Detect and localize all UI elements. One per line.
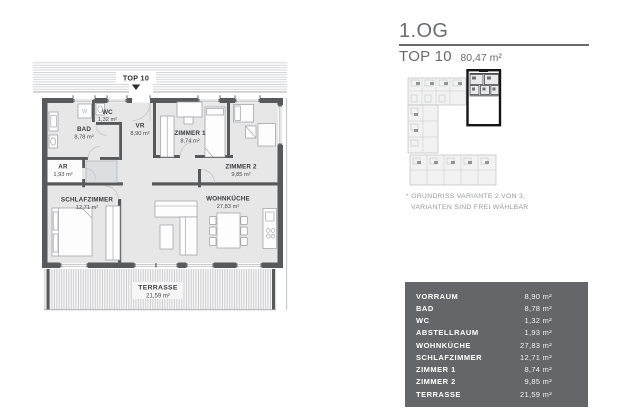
unit-title: TOP 10 80,47 m² (399, 48, 502, 66)
variant-note-line1: * GRUNDRISS VARIANTE 2 VON 3, (406, 192, 529, 203)
window-bottom-2 (186, 263, 214, 267)
kitchen-counter (263, 209, 277, 249)
window-right (278, 105, 282, 145)
wohnkueche-area: 27,83 m² (217, 204, 240, 210)
entrance-door-gap (132, 99, 150, 103)
table-row: WC 1,32 m² (405, 315, 588, 327)
window-top-4 (235, 99, 260, 103)
entrance-marker-label: TOP 10 (123, 74, 149, 83)
row-value: 1,93 m² (524, 328, 552, 337)
table-row: BAD 8,78 m² (405, 302, 588, 314)
bedroom-furniture (52, 206, 120, 260)
wohnkueche-label: WOHNKÜCHE (206, 194, 250, 203)
terrasse-label: TERRASSE (138, 285, 178, 292)
wc-label: WC (102, 109, 113, 116)
terrace-door (134, 263, 178, 267)
floor-title: 1.OG (399, 21, 448, 41)
dining-set (210, 213, 248, 248)
row-value: 1,32 m² (524, 316, 552, 325)
zimmer2-label: ZIMMER 2 (225, 164, 257, 171)
zimmer1-label: ZIMMER 1 (174, 130, 206, 137)
row-value: 8,78 m² (524, 304, 552, 313)
schlafzimmer-label: SCHLAFZIMMER (61, 197, 113, 204)
row-value: 8,90 m² (524, 292, 552, 301)
ar-label: AR (58, 164, 68, 171)
row-value: 9,85 m² (524, 377, 552, 386)
washer-label: W (82, 109, 88, 115)
zimmer1-area: 8,74 m² (180, 139, 199, 145)
row-label: ZIMMER 1 (416, 365, 456, 374)
row-label: ZIMMER 2 (416, 377, 456, 386)
schlafzimmer-area: 12,71 m² (76, 205, 99, 211)
row-label: BAD (416, 304, 434, 313)
vr-area: 8,90 m² (130, 131, 149, 137)
table-row: VORRAUM 8,90 m² (405, 290, 588, 302)
bad-area: 8,78 m² (74, 135, 93, 141)
zimmer2-area: 9,85 m² (231, 172, 250, 178)
floor-plan: TOP 10 (30, 60, 300, 320)
table-row: ZIMMER 1 8,74 m² (405, 364, 588, 376)
window-bottom-1 (60, 263, 88, 267)
row-value: 21,59 m² (520, 390, 552, 399)
window-top-1 (73, 99, 95, 103)
table-row: ABSTELLRAUM 1,93 m² (405, 327, 588, 339)
row-label: WC (416, 316, 430, 325)
row-label: TERRASSE (416, 390, 461, 399)
window-bottom-3 (236, 263, 262, 267)
area-table: VORRAUM 8,90 m² BAD 8,78 m² WC 1,32 m² A… (405, 282, 588, 407)
row-value: 8,74 m² (524, 365, 552, 374)
window-top-2 (107, 99, 127, 103)
row-label: SCHLAFZIMMER (416, 353, 482, 362)
row-value: 27,83 m² (520, 341, 552, 350)
bad-label: BAD (77, 126, 91, 133)
variant-note-line2: VARIANTEN SIND FREI WÄHLBAR (406, 203, 529, 214)
row-value: 12,71 m² (520, 353, 552, 362)
vr-label: VR (135, 123, 144, 130)
site-key-plan (402, 69, 506, 189)
table-row: SCHLAFZIMMER 12,71 m² (405, 351, 588, 363)
row-label: WOHNKÜCHE (416, 341, 471, 350)
key-plan-highlighted-unit (468, 69, 501, 125)
table-row: WOHNKÜCHE 27,83 m² (405, 339, 588, 351)
table-row: TERRASSE 21,59 m² (405, 388, 588, 400)
facade-line (286, 98, 287, 310)
table-row: ZIMMER 2 9,85 m² (405, 376, 588, 388)
ar-area: 1,93 m² (53, 172, 72, 178)
unit-total-area: 80,47 m² (460, 52, 501, 64)
terrasse-area: 21,59 m² (146, 294, 170, 300)
brochure-page: TOP 10 (0, 0, 620, 410)
terrace: TERRASSE 21,59 m² (44, 269, 276, 310)
title-rule (399, 44, 589, 46)
wc-area: 1,32 m² (98, 117, 117, 123)
neighbor-hatch-band (33, 62, 287, 93)
unit-name: TOP 10 (399, 48, 452, 65)
row-label: VORRAUM (416, 292, 458, 301)
row-label: ABSTELLRAUM (416, 328, 479, 337)
variant-note: * GRUNDRISS VARIANTE 2 VON 3, VARIANTEN … (406, 192, 529, 214)
hall-wardrobe (86, 161, 117, 183)
